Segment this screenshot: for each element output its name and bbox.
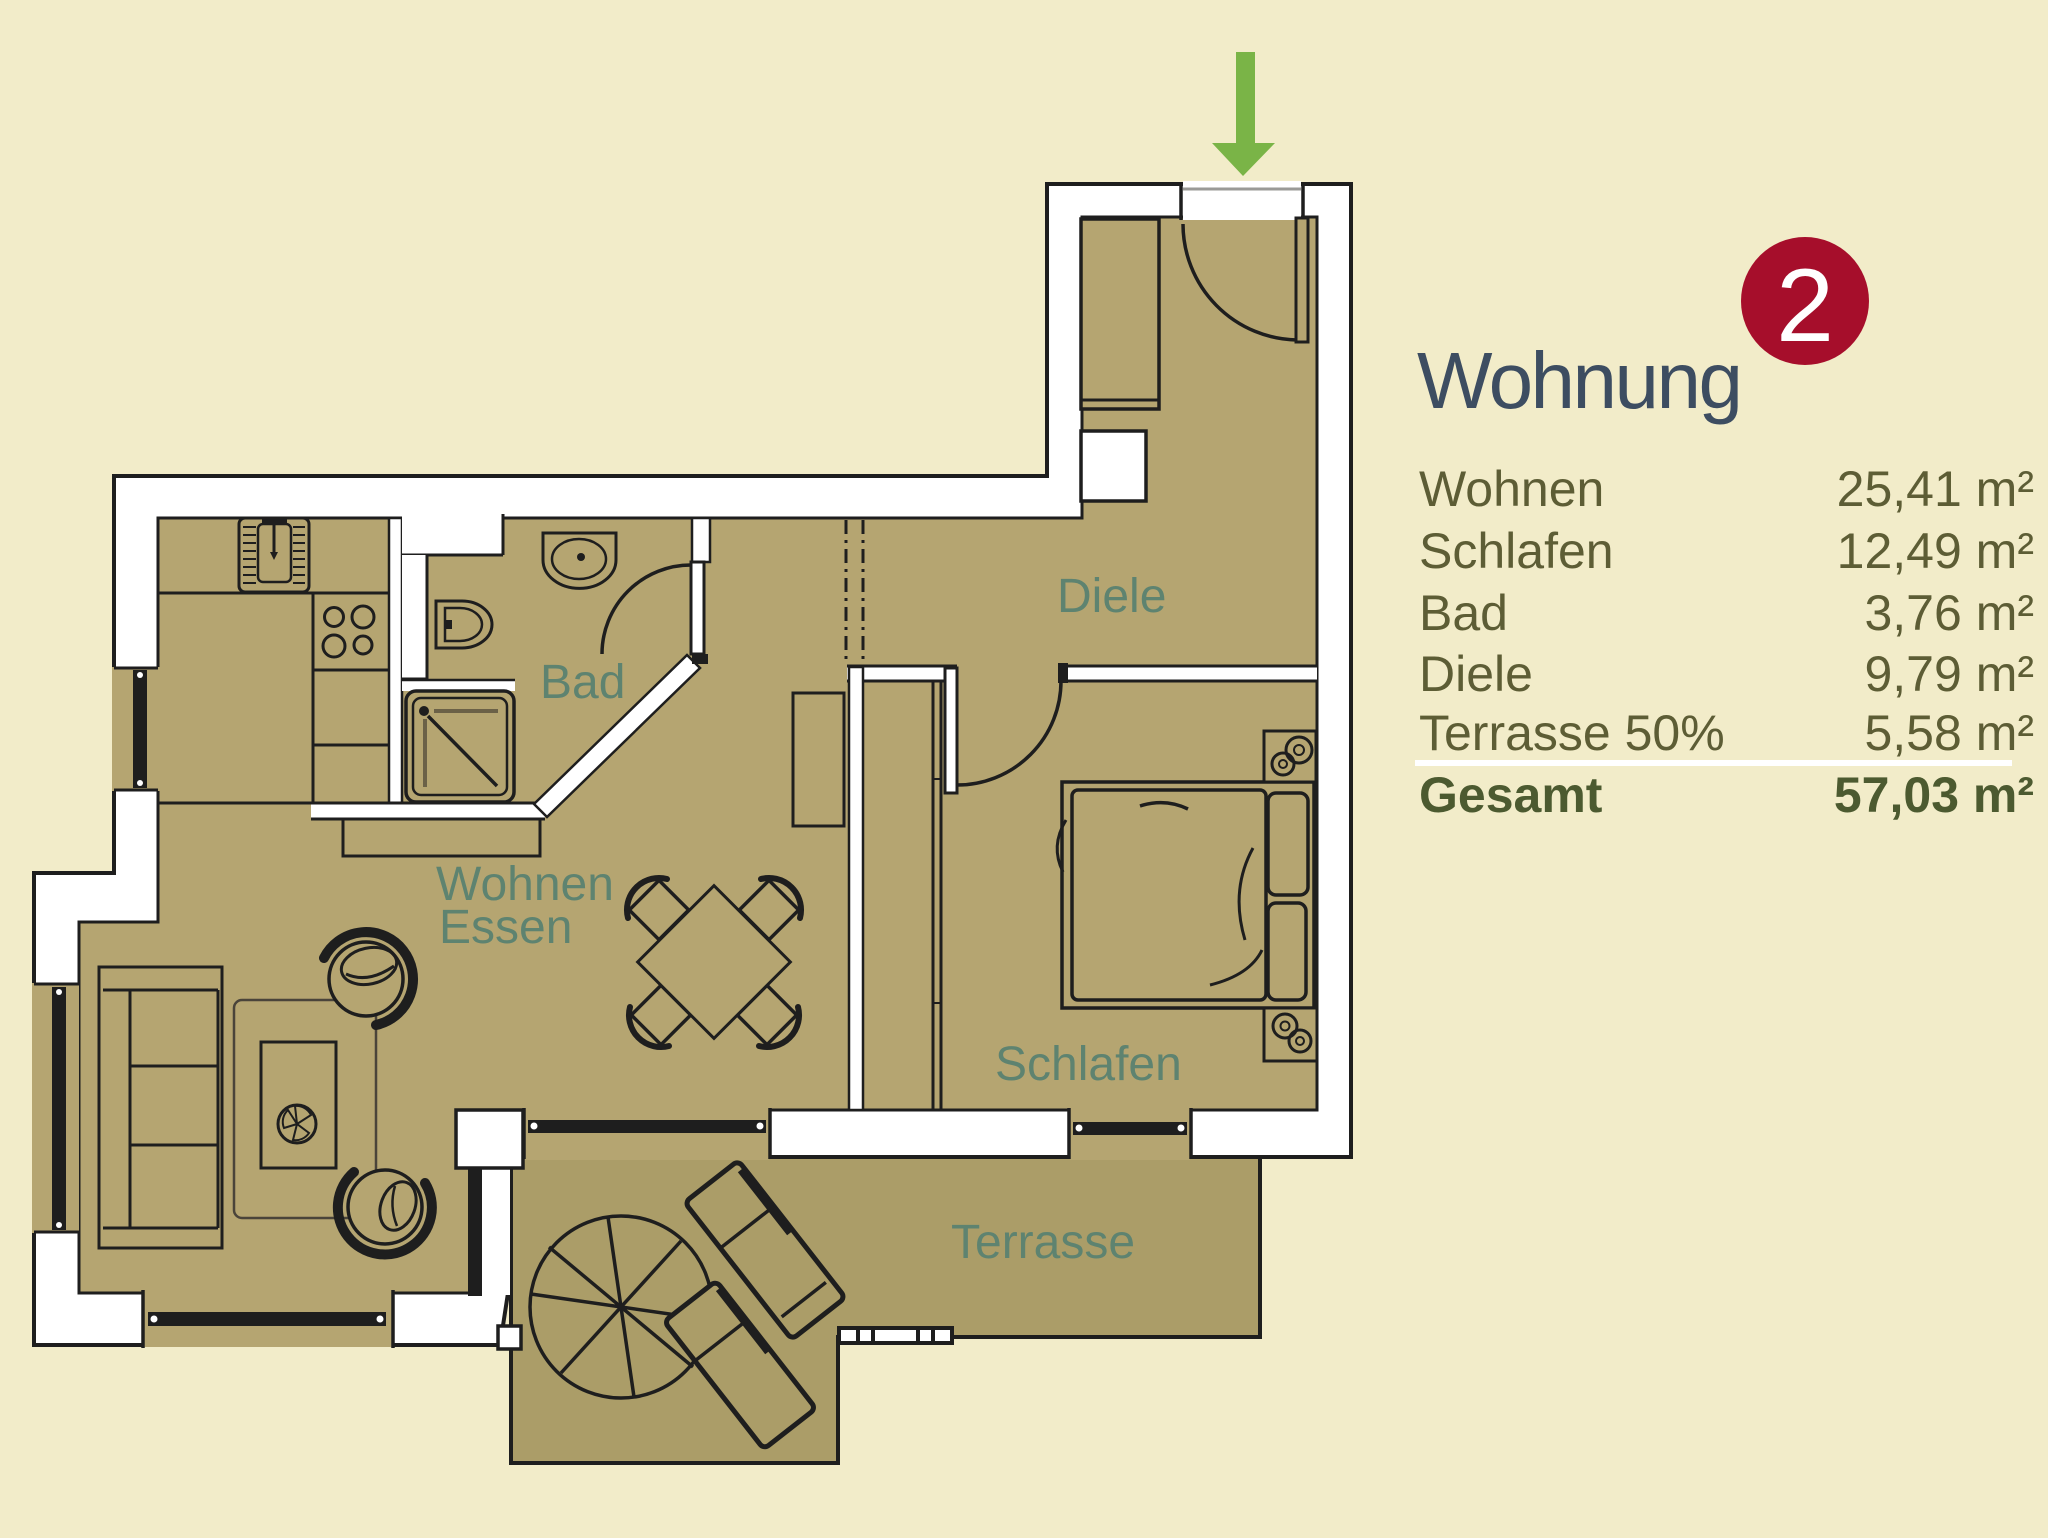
svg-text:3,76 m²: 3,76 m²	[1864, 585, 2034, 641]
svg-text:Schlafen: Schlafen	[995, 1038, 1182, 1091]
svg-text:Terrasse: Terrasse	[951, 1216, 1135, 1269]
svg-text:57,03 m²: 57,03 m²	[1834, 767, 2034, 823]
svg-text:25,41 m²: 25,41 m²	[1837, 461, 2034, 517]
svg-text:12,49 m²: 12,49 m²	[1837, 523, 2034, 579]
svg-text:Gesamt: Gesamt	[1419, 767, 1603, 823]
svg-text:Schlafen: Schlafen	[1419, 523, 1614, 579]
svg-text:2: 2	[1776, 248, 1834, 364]
svg-text:Diele: Diele	[1057, 570, 1166, 623]
svg-text:Wohnung: Wohnung	[1417, 336, 1741, 425]
svg-text:Terrasse 50%: Terrasse 50%	[1419, 705, 1725, 761]
svg-text:Bad: Bad	[540, 656, 625, 709]
svg-text:Diele: Diele	[1419, 646, 1533, 702]
svg-text:5,58 m²: 5,58 m²	[1864, 705, 2034, 761]
svg-text:Bad: Bad	[1419, 585, 1508, 641]
svg-text:9,79 m²: 9,79 m²	[1864, 646, 2034, 702]
svg-text:Essen: Essen	[439, 901, 572, 954]
svg-text:Wohnen: Wohnen	[1419, 461, 1604, 517]
